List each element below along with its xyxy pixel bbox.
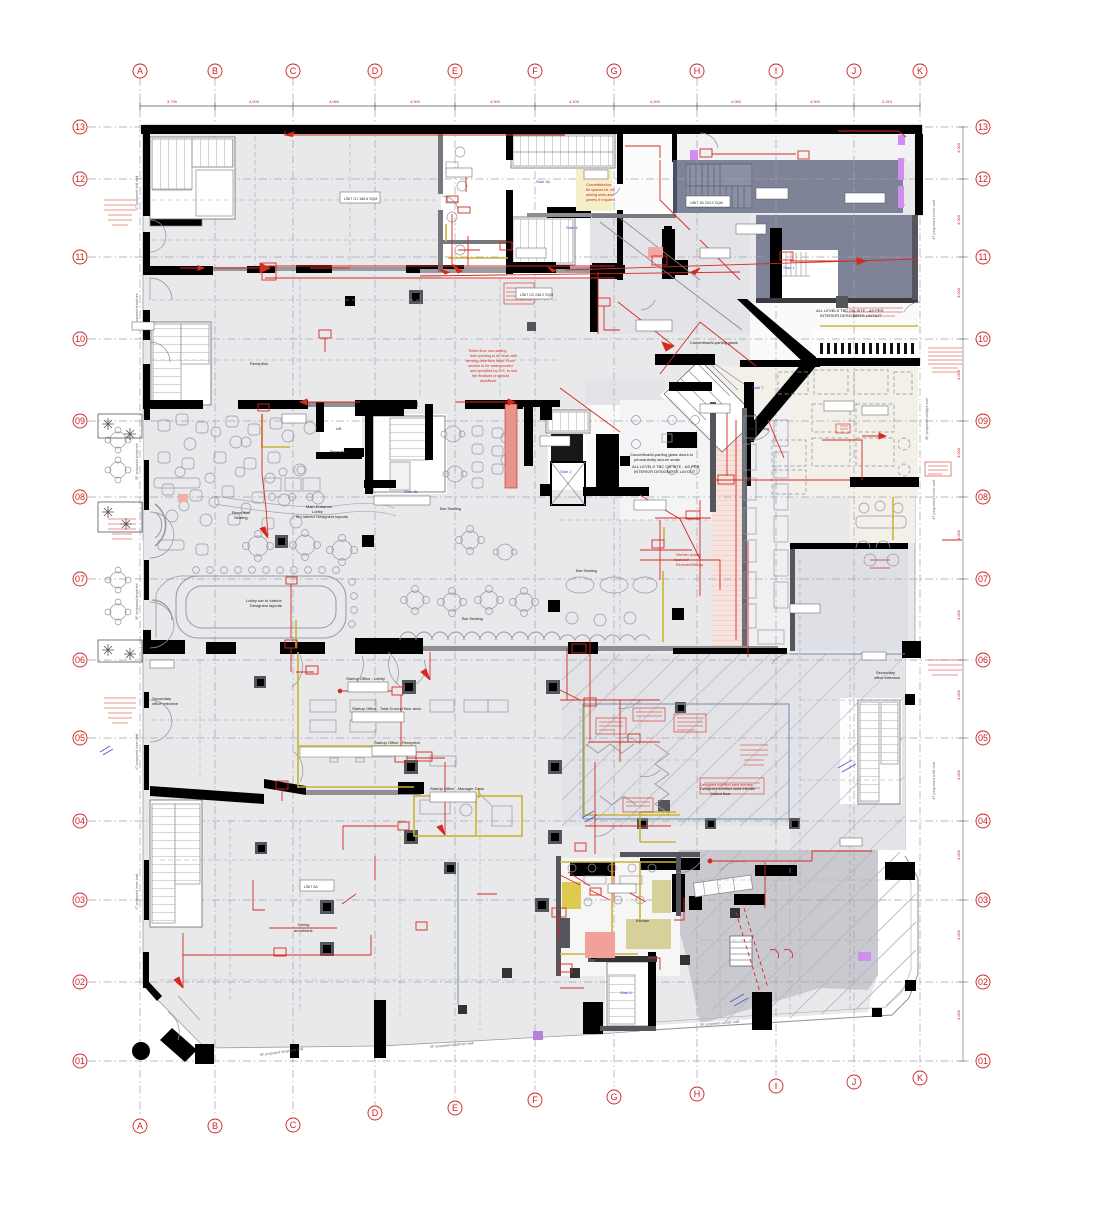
- svg-text:SF proposed rooflight over: SF proposed rooflight over: [925, 397, 929, 440]
- svg-text:Kitchen splash: Kitchen splash: [676, 553, 701, 557]
- svg-text:A: A: [137, 1121, 143, 1131]
- svg-text:K: K: [917, 66, 923, 76]
- svg-text:11: 11: [978, 252, 987, 262]
- svg-text:4,000: 4,000: [956, 1009, 961, 1020]
- svg-text:4,000: 4,000: [956, 214, 961, 225]
- svg-text:4,000: 4,000: [956, 369, 961, 380]
- svg-text:G: G: [610, 1092, 617, 1102]
- svg-text:Bar Seating: Bar Seating: [440, 506, 461, 511]
- svg-text:47 proposed inner wall: 47 proposed inner wall: [931, 200, 936, 240]
- svg-text:J: J: [852, 66, 857, 76]
- svg-text:Startup Office - Reception: Startup Office - Reception: [374, 740, 420, 745]
- svg-text:Startup Office - Manager Desk: Startup Office - Manager Desk: [430, 786, 484, 791]
- svg-text:D: D: [372, 66, 379, 76]
- svg-text:J: J: [852, 1077, 857, 1087]
- svg-text:arising slots and: arising slots and: [586, 193, 613, 197]
- svg-text:Bar Seating: Bar Seating: [576, 568, 597, 573]
- svg-text:Lift: Lift: [336, 426, 342, 431]
- svg-text:the finalised proposed: the finalised proposed: [472, 374, 509, 378]
- svg-text:4,000: 4,000: [956, 849, 961, 860]
- svg-text:Reception: Reception: [250, 361, 268, 366]
- svg-text:Stair 1: Stair 1: [783, 265, 795, 270]
- svg-text:47 proposed inner wall: 47 proposed inner wall: [135, 874, 139, 910]
- svg-text:Stair 7: Stair 7: [752, 385, 764, 390]
- svg-text:05: 05: [978, 733, 988, 743]
- svg-text:03: 03: [978, 895, 988, 905]
- svg-text:4,000: 4,000: [490, 99, 501, 104]
- svg-text:47 proposed infill wall: 47 proposed infill wall: [135, 175, 139, 210]
- svg-text:E: E: [452, 66, 458, 76]
- svg-text:B: B: [212, 1121, 218, 1131]
- svg-text:4,000: 4,000: [956, 609, 961, 620]
- svg-text:04: 04: [75, 816, 85, 826]
- svg-text:that opening to be level with: that opening to be level with: [470, 354, 517, 358]
- svg-text:3,310: 3,310: [882, 99, 893, 104]
- svg-text:12: 12: [978, 174, 988, 184]
- svg-text:13: 13: [75, 122, 85, 132]
- svg-text:Designed nutrition area elevat: Designed nutrition area elevate: [700, 783, 753, 787]
- svg-text:F: F: [532, 66, 538, 76]
- svg-text:11: 11: [75, 252, 84, 262]
- svg-text:4,000: 4,000: [956, 447, 961, 458]
- svg-text:Lift: Lift: [560, 448, 566, 453]
- svg-text:Kitchen: Kitchen: [636, 918, 649, 923]
- svg-text:Remodel/fittings: Remodel/fittings: [676, 563, 703, 567]
- svg-text:D: D: [372, 1108, 379, 1118]
- svg-text:Bar Seating: Bar Seating: [462, 616, 483, 621]
- svg-text:Convertible/too: Convertible/too: [586, 183, 612, 187]
- svg-text:INTERIOR DESIGNER'S LAYOUT: INTERIOR DESIGNER'S LAYOUT: [634, 469, 696, 474]
- svg-text:02: 02: [978, 977, 988, 987]
- svg-text:Tinted floor non-writing: Tinted floor non-writing: [468, 349, 506, 353]
- svg-text:Stair 2: Stair 2: [560, 469, 572, 474]
- svg-text:Startup Office - Lobby: Startup Office - Lobby: [346, 676, 385, 681]
- svg-text:4,060: 4,060: [731, 99, 742, 104]
- svg-text:06: 06: [978, 655, 988, 665]
- svg-text:office entrance: office entrance: [874, 675, 901, 680]
- svg-text:UNIT 5A: UNIT 5A: [304, 885, 318, 889]
- svg-text:section to be waterproofed: section to be waterproofed: [468, 364, 513, 368]
- svg-text:H: H: [694, 66, 701, 76]
- svg-text:E: E: [452, 1103, 458, 1113]
- svg-text:C: C: [290, 66, 297, 76]
- svg-text:SF proposed shopfront: SF proposed shopfront: [135, 583, 139, 620]
- svg-text:3,790: 3,790: [167, 99, 178, 104]
- svg-text:4,000: 4,000: [956, 142, 961, 153]
- svg-text:A: A: [137, 66, 143, 76]
- svg-text:10: 10: [75, 334, 85, 344]
- svg-text:01: 01: [978, 1056, 988, 1066]
- svg-text:12: 12: [75, 174, 85, 184]
- svg-text:4,100: 4,100: [569, 99, 580, 104]
- svg-text:02: 02: [75, 977, 85, 987]
- svg-text:05: 05: [75, 733, 85, 743]
- svg-text:Stair 3a: Stair 3a: [536, 179, 551, 184]
- svg-text:SF proposed shopfront: SF proposed shopfront: [135, 443, 139, 480]
- svg-text:47 proposed infill wall: 47 proposed infill wall: [931, 762, 936, 800]
- svg-text:F: F: [532, 1095, 538, 1105]
- svg-text:09: 09: [978, 416, 988, 426]
- svg-text:4,000: 4,000: [956, 769, 961, 780]
- svg-text:INTERIOR DESIGNER'S LAYOUT: INTERIOR DESIGNER'S LAYOUT: [820, 313, 882, 318]
- svg-text:joinery if required: joinery if required: [585, 198, 615, 202]
- svg-text:Reception: Reception: [330, 449, 348, 454]
- svg-text:tbl spaces tol. off: tbl spaces tol. off: [586, 188, 615, 192]
- svg-text:4,000: 4,000: [956, 929, 961, 940]
- svg-text:07: 07: [978, 574, 988, 584]
- svg-text:Stair 3b: Stair 3b: [404, 489, 419, 494]
- svg-text:4,000: 4,000: [410, 99, 421, 104]
- svg-text:Stair 6: Stair 6: [620, 990, 632, 995]
- svg-text:Bar Seating: Bar Seating: [748, 426, 769, 431]
- svg-text:deadfloat: deadfloat: [480, 379, 497, 383]
- svg-text:area/blank: area/blank: [294, 928, 313, 933]
- svg-text:47 proposed inner wall: 47 proposed inner wall: [135, 734, 139, 770]
- svg-text:Concertina/bi-parting glass: Concertina/bi-parting glass: [690, 340, 738, 345]
- svg-text:Designers layouts: Designers layouts: [250, 603, 282, 608]
- svg-text:4,000: 4,000: [956, 287, 961, 298]
- svg-text:C: C: [290, 1120, 297, 1130]
- svg-text:Stair 4: Stair 4: [566, 225, 578, 230]
- svg-text:UNIT G2 248.2 SQM: UNIT G2 248.2 SQM: [520, 293, 553, 297]
- svg-text:arriving cafe/floor level. Flo: arriving cafe/floor level. Floor: [466, 359, 515, 363]
- svg-text:01: 01: [75, 1056, 85, 1066]
- svg-text:UNIT 1B 204.0 SQM: UNIT 1B 204.0 SQM: [690, 201, 723, 205]
- svg-text:4,000: 4,000: [249, 99, 260, 104]
- svg-text:G: G: [610, 66, 617, 76]
- svg-text:47 proposed inner wall: 47 proposed inner wall: [931, 480, 936, 520]
- svg-text:and specified by U.E. to suit: and specified by U.E. to suit: [470, 369, 518, 373]
- svg-text:Startup Office - Total Ground: Startup Office - Total Ground floor area: [352, 706, 422, 711]
- svg-text:08: 08: [75, 492, 85, 502]
- svg-text:I: I: [775, 1081, 778, 1091]
- svg-text:Dining: Dining: [298, 922, 309, 927]
- svg-text:fit-t Interior Designers layou: fit-t Interior Designers layouts: [296, 514, 348, 519]
- svg-text:07: 07: [75, 574, 85, 584]
- svg-text:06: 06: [75, 655, 85, 665]
- svg-text:H: H: [694, 1089, 701, 1099]
- svg-text:K: K: [917, 1073, 923, 1083]
- svg-text:13: 13: [978, 122, 988, 132]
- svg-text:B: B: [212, 66, 218, 76]
- svg-text:09: 09: [75, 416, 85, 426]
- svg-text:4,060: 4,060: [329, 99, 340, 104]
- svg-text:permanently secure seats: permanently secure seats: [634, 457, 680, 462]
- svg-text:I: I: [775, 66, 778, 76]
- svg-text:4,000: 4,000: [956, 689, 961, 700]
- svg-text:Seating: Seating: [234, 515, 248, 520]
- svg-text:4,200: 4,200: [650, 99, 661, 104]
- svg-text:UNIT G1 186.6 SQM: UNIT G1 186.6 SQM: [344, 197, 377, 201]
- svg-text:Coded floor: Coded floor: [710, 791, 731, 796]
- svg-text:10: 10: [978, 334, 988, 344]
- svg-text:4,000: 4,000: [810, 99, 821, 104]
- svg-text:office entrance: office entrance: [152, 701, 179, 706]
- svg-text:03: 03: [75, 895, 85, 905]
- svg-text:08: 08: [978, 492, 988, 502]
- svg-text:4,000: 4,000: [956, 529, 961, 540]
- svg-text:04: 04: [978, 816, 988, 826]
